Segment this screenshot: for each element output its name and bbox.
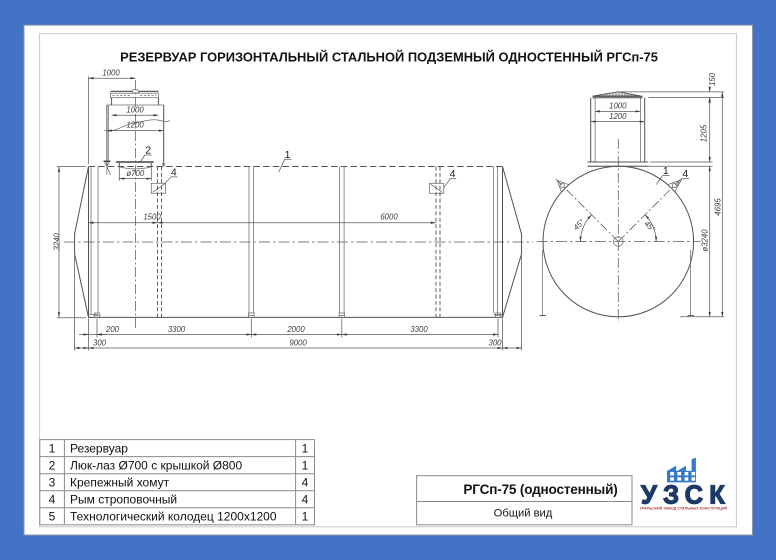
svg-text:3: 3 bbox=[49, 476, 56, 490]
svg-text:1000: 1000 bbox=[126, 105, 144, 114]
svg-text:1205: 1205 bbox=[700, 124, 709, 142]
svg-text:4695: 4695 bbox=[713, 198, 722, 216]
svg-text:1: 1 bbox=[302, 441, 309, 455]
svg-text:ø700: ø700 bbox=[126, 169, 144, 178]
svg-text:2000: 2000 bbox=[286, 325, 305, 334]
svg-text:1200: 1200 bbox=[609, 112, 627, 121]
svg-text:4: 4 bbox=[49, 493, 56, 507]
svg-text:9000: 9000 bbox=[289, 339, 307, 348]
svg-text:Общий вид: Общий вид bbox=[494, 508, 553, 520]
svg-text:300: 300 bbox=[488, 339, 502, 348]
svg-text:Люк-лаз Ø700 с крышкой Ø800: Люк-лаз Ø700 с крышкой Ø800 bbox=[70, 459, 242, 473]
svg-text:1000: 1000 bbox=[609, 102, 627, 111]
svg-text:1200: 1200 bbox=[126, 121, 144, 130]
svg-text:3300: 3300 bbox=[168, 325, 186, 334]
svg-text:200: 200 bbox=[105, 325, 120, 334]
svg-text:1: 1 bbox=[49, 441, 56, 455]
svg-text:1000: 1000 bbox=[102, 69, 120, 78]
svg-text:3240: 3240 bbox=[52, 232, 61, 250]
svg-text:1: 1 bbox=[302, 510, 309, 524]
svg-text:1500: 1500 bbox=[143, 213, 161, 222]
svg-text:РГСп-75 (одностенный): РГСп-75 (одностенный) bbox=[463, 482, 617, 497]
svg-text:ø3240: ø3240 bbox=[701, 229, 710, 252]
svg-text:УЗСК: УЗСК bbox=[641, 482, 731, 510]
svg-text:Технологический колодец 1200х1: Технологический колодец 1200х1200 bbox=[70, 510, 277, 524]
svg-text:150: 150 bbox=[708, 72, 717, 86]
svg-text:4: 4 bbox=[302, 493, 309, 507]
svg-text:Крепежный хомут: Крепежный хомут bbox=[70, 476, 170, 490]
svg-text:УРАЛЬСКИЙ ЗАВОД СТАЛЬНЫХ КОНСТ: УРАЛЬСКИЙ ЗАВОД СТАЛЬНЫХ КОНСТРУКЦИЙ bbox=[640, 506, 728, 510]
svg-text:6000: 6000 bbox=[380, 213, 398, 222]
svg-text:1: 1 bbox=[302, 459, 309, 473]
svg-text:Рым строповочный: Рым строповочный bbox=[70, 493, 177, 507]
svg-text:3300: 3300 bbox=[410, 325, 428, 334]
svg-text:300: 300 bbox=[93, 339, 107, 348]
svg-text:2: 2 bbox=[49, 459, 56, 473]
svg-text:РЕЗЕРВУАР ГОРИЗОНТАЛЬНЫЙ СТАЛЬ: РЕЗЕРВУАР ГОРИЗОНТАЛЬНЫЙ СТАЛЬНОЙ ПОДЗЕМ… bbox=[120, 49, 658, 64]
svg-text:Резервуар: Резервуар bbox=[70, 441, 128, 455]
svg-text:5: 5 bbox=[49, 510, 56, 524]
svg-text:4: 4 bbox=[302, 476, 309, 490]
